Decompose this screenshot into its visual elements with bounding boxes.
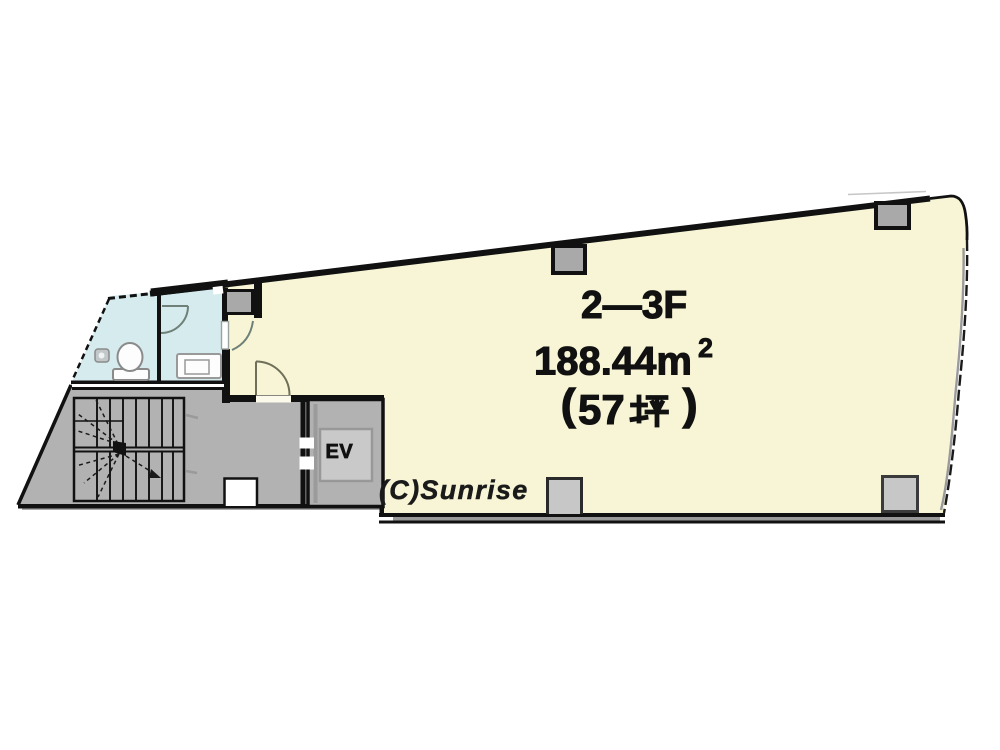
svg-text:(: ( (561, 381, 576, 429)
svg-text:57: 57 (578, 386, 625, 433)
svg-text:2: 2 (698, 333, 713, 363)
svg-text:(C)Sunrise: (C)Sunrise (379, 475, 529, 505)
svg-text:): ) (683, 381, 697, 429)
svg-text:2—3F: 2—3F (581, 284, 687, 327)
svg-text:EV: EV (326, 441, 354, 463)
svg-text:188.44m: 188.44m (534, 340, 692, 384)
